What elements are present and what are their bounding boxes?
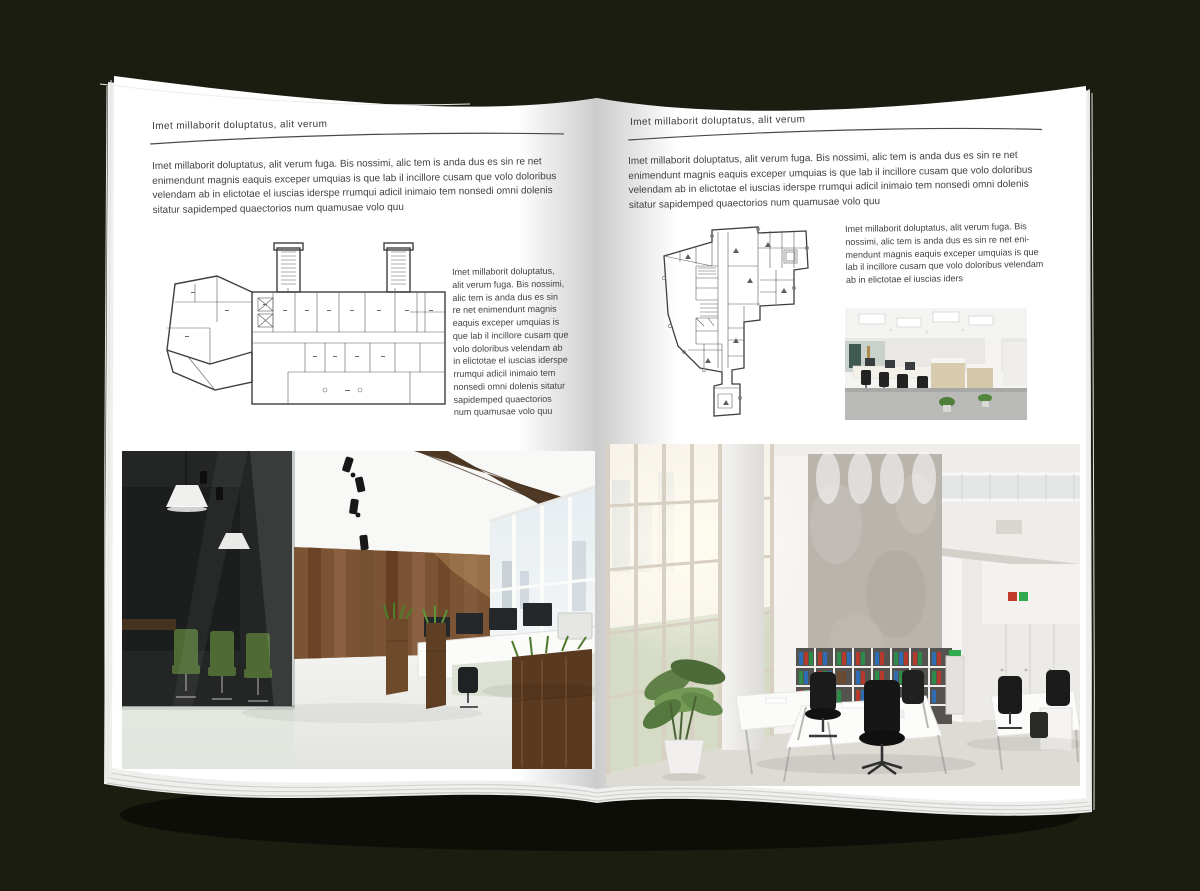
mezzanine [942,444,1080,572]
left-page-caption: Imet millaborit doluptatus, alit verum f… [452,265,570,420]
safety-sign-red [1008,592,1017,601]
book-mockup: Imet millaborit doluptatus, alit verum I… [0,0,1200,891]
white-monitor [558,613,592,639]
vent-grille [996,520,1022,534]
plan-partitions [167,252,445,404]
right-page-caption: Imet millaborit doluptatus, alit verum f… [845,220,1046,287]
wood-meeting-table [122,619,176,630]
exit-door [946,650,964,714]
plan-partitions [664,231,808,408]
city-building [502,561,513,609]
glass-meeting-room [122,451,295,710]
gray-floor [845,388,1027,420]
right-page-intro: Imet millaborit doluptatus, alit verum f… [628,149,1041,213]
office-photo-right [606,444,1080,786]
safety-sign-green [1019,592,1028,601]
railing-glass [942,474,1080,500]
office-photo-small [845,308,1027,420]
plan-room-marks [185,292,433,392]
left-page-intro: Imet millaborit doluptatus, alit verum f… [152,155,563,218]
floor-plan-right [648,218,836,420]
office-photo-left [122,451,595,769]
plan-room-marks [662,227,808,405]
exit-sign [949,650,961,656]
floor-plan-left [155,232,447,414]
waste-bin [1030,712,1048,738]
